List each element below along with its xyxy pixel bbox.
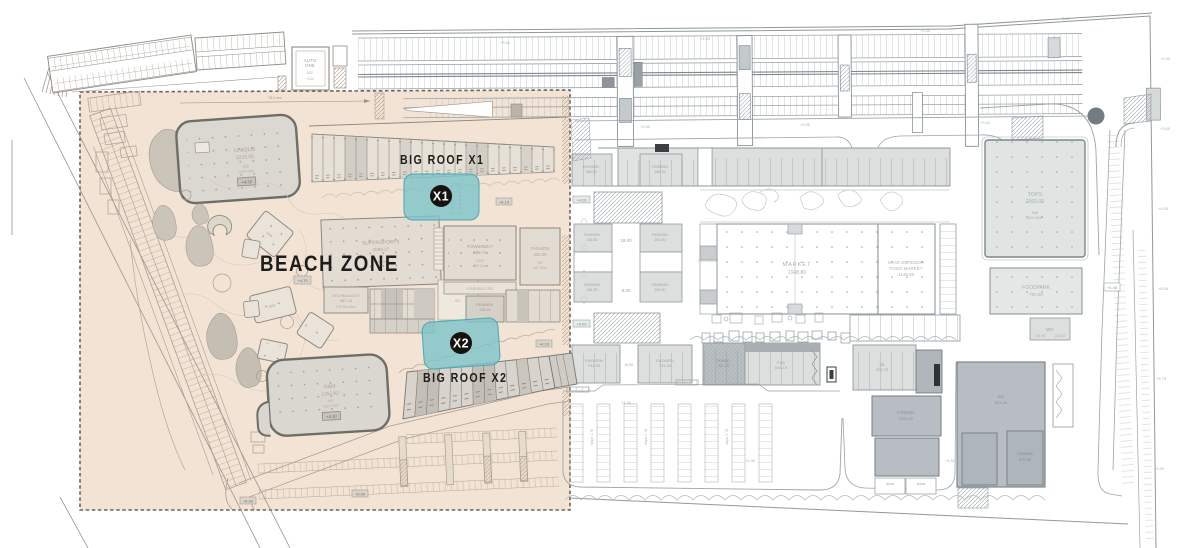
svg-text:+4.10: +4.10 <box>499 200 510 205</box>
svg-text:18.00: 18.00 <box>620 238 632 243</box>
svg-text:281.50: 281.50 <box>587 288 598 292</box>
svg-text:1257.82: 1257.82 <box>321 390 339 397</box>
svg-text:+6.00: +6.00 <box>1158 286 1169 291</box>
svg-text:Autos: Autos <box>886 482 895 486</box>
svg-text:539.20: 539.20 <box>480 308 491 312</box>
svg-text:+3.00: +3.00 <box>500 40 511 45</box>
svg-text:ACP: ACP <box>307 71 314 75</box>
svg-text:+4.00: +4.00 <box>1158 206 1169 211</box>
svg-text:BIG ROOF X2: BIG ROOF X2 <box>423 371 507 385</box>
svg-text:WC: WC <box>1046 327 1054 332</box>
svg-text:FASHION: FASHION <box>584 233 600 237</box>
svg-text:591.00: 591.00 <box>995 400 1008 405</box>
svg-text:FASHION: FASHION <box>652 233 668 237</box>
svg-text:701.25: 701.25 <box>717 364 729 368</box>
svg-text:slope 1.76: slope 1.76 <box>590 429 594 445</box>
svg-text:252.96m²: 252.96m² <box>1027 216 1044 220</box>
svg-text:948: 948 <box>1032 211 1038 215</box>
svg-text:2000.00: 2000.00 <box>1026 199 1044 205</box>
svg-text:STAR OUTDOOR: STAR OUTDOOR <box>888 260 925 265</box>
svg-text:287.13m²: 287.13m² <box>533 266 546 270</box>
svg-text:+3.00: +3.00 <box>980 120 991 125</box>
svg-text:1099.27: 1099.27 <box>373 247 390 253</box>
svg-text:ONE: ONE <box>305 63 315 68</box>
svg-text:8.00: 8.00 <box>625 362 634 367</box>
svg-text:+4.10: +4.10 <box>326 414 338 420</box>
svg-text:387.43: 387.43 <box>340 299 352 303</box>
svg-text:+4.60: +4.60 <box>945 458 956 463</box>
svg-text:1149.26: 1149.26 <box>898 272 914 277</box>
svg-text:GRAND: GRAND <box>716 359 730 363</box>
svg-text:326: 326 <box>242 164 248 168</box>
svg-text:791.90: 791.90 <box>659 363 672 368</box>
svg-text:EC: EC <box>998 394 1005 399</box>
svg-text:+4.70: +4.70 <box>297 278 308 283</box>
svg-text:+4.30: +4.30 <box>241 179 253 185</box>
svg-text:1225.05: 1225.05 <box>236 154 255 161</box>
svg-text:+4.10: +4.10 <box>539 342 550 347</box>
svg-text:1SF 264.52m²: 1SF 264.52m² <box>336 305 356 309</box>
svg-text:OUTDOOR: OUTDOOR <box>698 258 719 263</box>
svg-text:281.50: 281.50 <box>655 288 666 292</box>
svg-text:FOOD MARKET: FOOD MARKET <box>889 266 922 271</box>
svg-text:FASHION: FASHION <box>652 283 668 287</box>
svg-text:H&M: H&M <box>324 384 336 391</box>
svg-text:+4.10: +4.10 <box>306 77 314 81</box>
svg-text:+1.00: +1.00 <box>1160 56 1171 61</box>
svg-text:FASHION: FASHION <box>584 283 600 287</box>
svg-text:+1.00: +1.00 <box>700 36 711 41</box>
svg-text:750.00: 750.00 <box>1029 292 1043 297</box>
svg-text:+1.00: +1.00 <box>920 28 931 33</box>
svg-text:984.13m²: 984.13m² <box>473 264 486 268</box>
svg-text:+6.00: +6.00 <box>1154 466 1165 471</box>
svg-text:1SF: 1SF <box>327 399 333 403</box>
svg-text:BC: BC <box>455 298 461 303</box>
svg-text:+4.40: +4.40 <box>1107 285 1118 290</box>
svg-text:FOODPARK: FOODPARK <box>1022 285 1050 291</box>
svg-text:MARKET: MARKET <box>783 262 812 268</box>
svg-text:X2: X2 <box>453 337 469 351</box>
svg-text:+4.40: +4.40 <box>640 124 651 129</box>
svg-text:2SF: 2SF <box>537 261 543 265</box>
svg-text:875.50: 875.50 <box>1019 457 1032 462</box>
svg-text:+4.00: +4.00 <box>243 499 254 504</box>
svg-text:POWERBUY: POWERBUY <box>467 244 494 249</box>
svg-text:FASHION: FASHION <box>652 165 668 169</box>
svg-text:+6.75: +6.75 <box>1156 376 1167 381</box>
svg-text:FASHION: FASHION <box>531 246 549 251</box>
svg-text:+4.00: +4.00 <box>576 322 587 327</box>
svg-text:8.00: 8.00 <box>622 288 631 293</box>
svg-text:slope 1.76: slope 1.76 <box>644 429 648 445</box>
svg-text:slope 1.76: slope 1.76 <box>725 429 729 445</box>
svg-text:TOPS: TOPS <box>1028 192 1043 198</box>
svg-text:366.25: 366.25 <box>655 170 666 174</box>
svg-text:POWERBUY 2SF: POWERBUY 2SF <box>467 287 494 291</box>
svg-text:+4.00: +4.00 <box>576 198 587 203</box>
svg-text:PRIMARK: PRIMARK <box>476 303 494 307</box>
svg-text:TECHNOLOGY: TECHNOLOGY <box>332 293 360 298</box>
svg-text:CINEMA: CINEMA <box>897 410 915 415</box>
svg-text:+0.00: +0.00 <box>355 492 366 497</box>
svg-text:644.19: 644.19 <box>775 365 788 370</box>
svg-text:CINEMA: CINEMA <box>1017 451 1033 456</box>
svg-text:+5.87: +5.87 <box>1060 16 1071 21</box>
svg-text:1948.80: 1948.80 <box>788 270 806 276</box>
svg-text:1193.20: 1193.20 <box>899 416 914 421</box>
svg-text:438.30: 438.30 <box>534 252 547 257</box>
svg-text:791.90: 791.90 <box>588 363 601 368</box>
svg-text:1F/2F: 1F/2F <box>476 259 484 263</box>
svg-text:+4.00: +4.00 <box>800 122 811 127</box>
svg-text:76.4 mm: 76.4 mm <box>268 96 282 100</box>
svg-text:FASHION: FASHION <box>583 165 599 169</box>
svg-text:+4.45: +4.45 <box>745 458 756 463</box>
svg-text:366.25: 366.25 <box>586 170 597 174</box>
svg-text:+3.00: +3.00 <box>1160 126 1171 131</box>
svg-text:281.50: 281.50 <box>655 238 666 242</box>
svg-text:BIG ROOF X1: BIG ROOF X1 <box>400 153 484 167</box>
svg-text:999.70: 999.70 <box>473 250 487 255</box>
svg-text:X1: X1 <box>433 190 449 204</box>
svg-text:BEACH ZONE: BEACH ZONE <box>260 253 399 277</box>
svg-text:471.75: 471.75 <box>876 367 889 372</box>
svg-text:245.37: 245.37 <box>1055 334 1066 338</box>
svg-text:128.76: 128.76 <box>1035 334 1046 338</box>
svg-text:281.50: 281.50 <box>587 238 598 242</box>
svg-text:Autos: Autos <box>917 482 926 486</box>
